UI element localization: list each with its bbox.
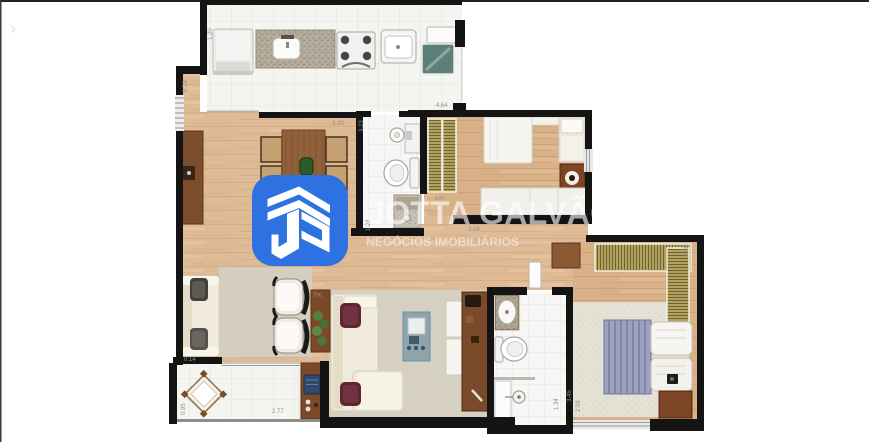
svg-text:1.34: 1.34 — [554, 398, 560, 410]
svg-text:NEGÓCIOS IMOBILIÁRIOS: NEGÓCIOS IMOBILIÁRIOS — [366, 234, 520, 249]
svg-text:2.46: 2.46 — [684, 245, 690, 257]
svg-text:0.14: 0.14 — [184, 357, 196, 363]
svg-text:0.78: 0.78 — [183, 80, 189, 92]
svg-text:0.95: 0.95 — [181, 403, 187, 415]
svg-text:3.45: 3.45 — [567, 390, 573, 402]
svg-text:1.20: 1.20 — [208, 28, 214, 40]
svg-text:›: › — [10, 18, 16, 38]
svg-text:2.98: 2.98 — [576, 400, 582, 412]
svg-text:JOTTA GALVÃO: JOTTA GALVÃO — [367, 195, 616, 231]
svg-text:7%: 7% — [313, 293, 322, 299]
svg-text:2.77: 2.77 — [272, 409, 284, 415]
svg-text:3.23: 3.23 — [359, 120, 365, 132]
svg-text:3.30: 3.30 — [332, 121, 344, 127]
svg-text:4.64: 4.64 — [436, 103, 448, 109]
